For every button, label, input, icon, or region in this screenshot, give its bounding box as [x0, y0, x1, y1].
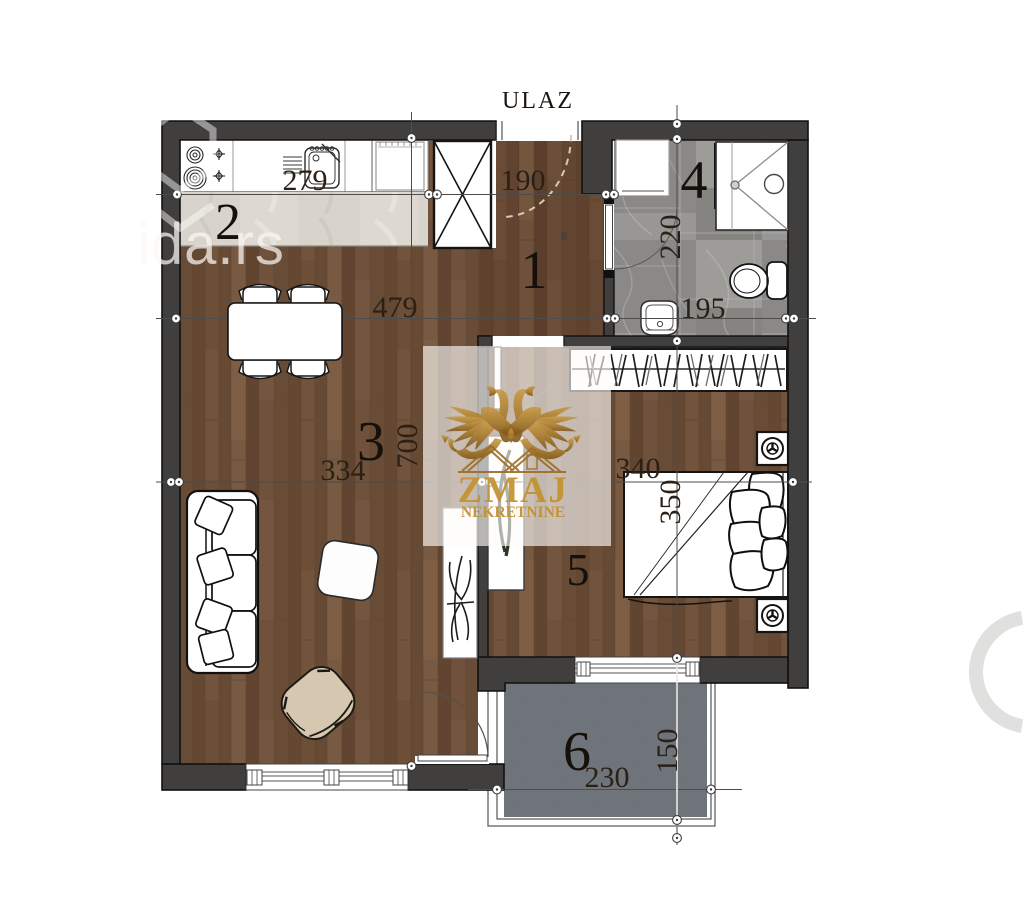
svg-text:3: 3: [357, 411, 385, 473]
svg-text:279: 279: [283, 164, 328, 197]
svg-text:ida.rs: ida.rs: [137, 212, 285, 277]
svg-text:190: 190: [501, 164, 546, 197]
svg-text:4: 4: [681, 150, 708, 210]
svg-text:700: 700: [391, 424, 424, 469]
svg-text:350: 350: [654, 480, 687, 525]
svg-text:479: 479: [373, 291, 418, 324]
svg-text:6: 6: [563, 721, 591, 783]
svg-text:230: 230: [585, 761, 630, 794]
svg-text:220: 220: [654, 215, 687, 260]
svg-text:150: 150: [651, 729, 684, 774]
svg-text:ULAZ: ULAZ: [502, 88, 574, 114]
svg-text:5: 5: [567, 544, 590, 595]
svg-text:195: 195: [681, 292, 726, 325]
svg-text:1: 1: [521, 240, 548, 300]
svg-text:NEKRETNINE: NEKRETNINE: [461, 504, 565, 521]
